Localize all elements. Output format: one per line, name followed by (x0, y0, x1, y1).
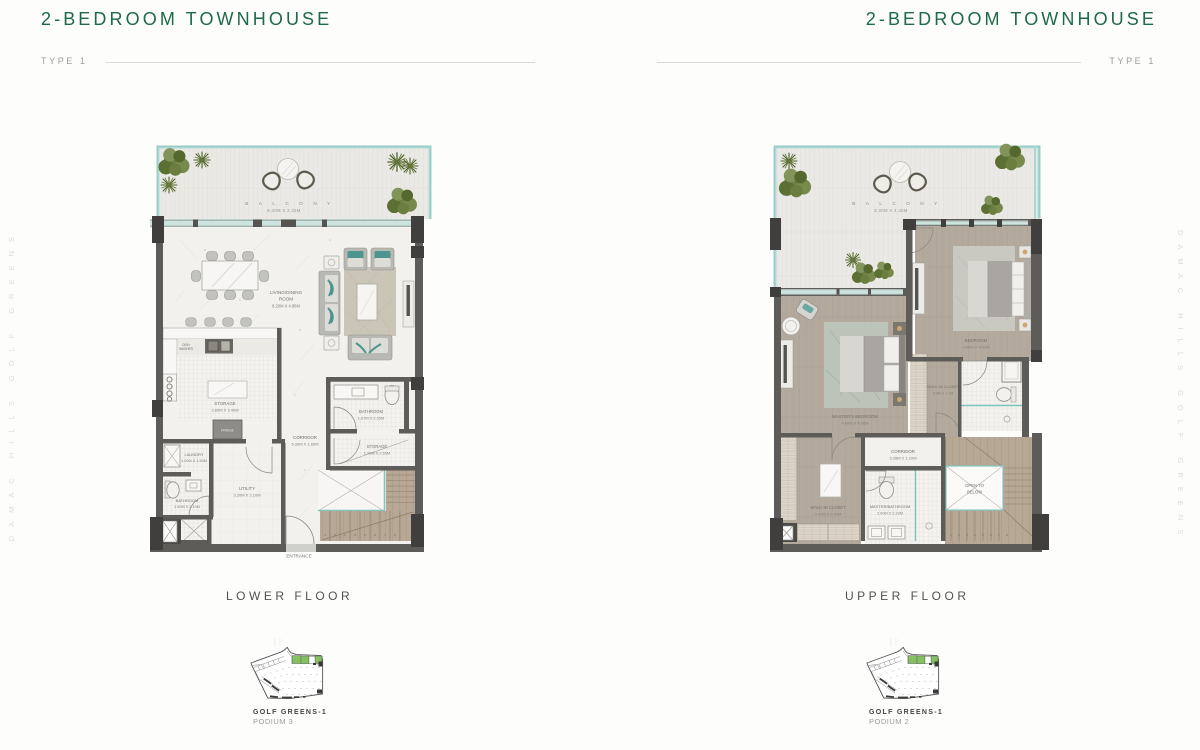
svg-text:8.30M X 2.33M: 8.30M X 2.33M (267, 208, 301, 213)
svg-text:CORRIDOR: CORRIDOR (293, 435, 317, 440)
svg-text:4.05M X 4.02M: 4.05M X 4.02M (962, 345, 989, 350)
svg-text:3.28M X 1.10M: 3.28M X 1.10M (889, 456, 916, 461)
svg-text:WALK-IN CLOSET: WALK-IN CLOSET (810, 505, 846, 510)
svg-text:BALCONY: BALCONY (245, 201, 340, 206)
svg-text:MASTER/BATHROOM: MASTER/BATHROOM (870, 504, 911, 509)
svg-text:OPEN TO: OPEN TO (965, 483, 984, 488)
svg-text:2.4M X 1.1M: 2.4M X 1.1M (933, 392, 953, 396)
svg-text:4.40M X 4.00M: 4.40M X 4.00M (841, 421, 868, 426)
svg-text:WASHER: WASHER (179, 347, 194, 351)
svg-text:WALK-IN CLOSET: WALK-IN CLOSET (927, 385, 960, 389)
svg-text:ENTRANCE: ENTRANCE (286, 554, 311, 559)
svg-text:3.20M X 2.10M: 3.20M X 2.10M (233, 493, 260, 498)
svg-text:1.00M X 2.65M: 1.00M X 2.65M (364, 451, 390, 456)
svg-text:UTILITY: UTILITY (239, 486, 255, 491)
svg-text:LIVING/DINING: LIVING/DINING (270, 290, 303, 295)
svg-text:BATHROOM: BATHROOM (359, 409, 383, 414)
svg-text:STORAGE: STORAGE (367, 444, 388, 449)
svg-text:3.65M X 3.40M: 3.65M X 3.40M (211, 408, 238, 413)
svg-text:8.20M X 4.88M: 8.20M X 4.88M (272, 304, 300, 309)
svg-text:STORAGE: STORAGE (214, 401, 235, 406)
svg-text:CORRIDOR: CORRIDOR (891, 449, 915, 454)
svg-text:5.30M X 1.65M: 5.30M X 1.65M (291, 442, 318, 447)
svg-text:2.60M X 2.23M: 2.60M X 2.23M (877, 512, 903, 516)
svg-text:BALCONY: BALCONY (852, 201, 947, 206)
svg-text:1.50M X 2.10M: 1.50M X 2.10M (174, 505, 200, 509)
svg-text:MASTER'S BEDROOM: MASTER'S BEDROOM (832, 414, 878, 419)
svg-text:BEDROOM: BEDROOM (965, 338, 988, 343)
svg-text:ROOM: ROOM (279, 297, 293, 302)
svg-text:1.67M X 2.25M: 1.67M X 2.25M (358, 416, 384, 421)
svg-text:BATHROOM: BATHROOM (176, 498, 199, 503)
svg-text:3.42M X 2.60M: 3.42M X 2.60M (815, 512, 841, 517)
svg-text:FRIDGE: FRIDGE (221, 429, 235, 433)
svg-text:BELOW: BELOW (967, 490, 982, 495)
svg-text:8.30M X 4.40M: 8.30M X 4.40M (874, 208, 908, 213)
svg-text:LAUNDRY: LAUNDRY (184, 452, 203, 457)
svg-text:1.00M X 1.50M: 1.00M X 1.50M (181, 459, 207, 463)
